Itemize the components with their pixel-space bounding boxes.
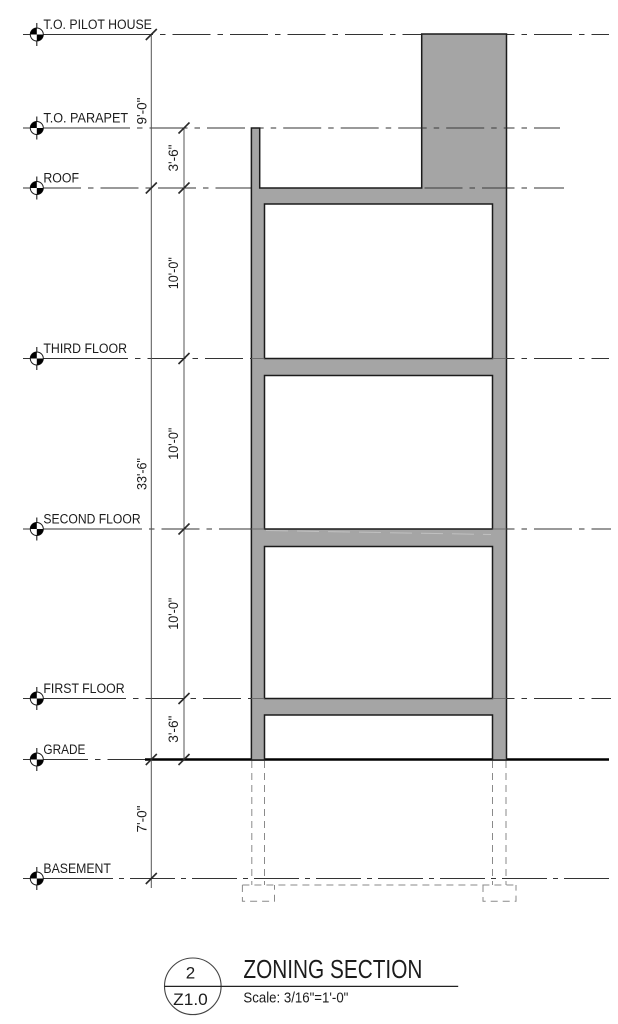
svg-text:ZONING SECTION: ZONING SECTION <box>243 954 422 984</box>
svg-text:ROOF: ROOF <box>43 171 79 186</box>
svg-text:T.O. PILOT HOUSE: T.O. PILOT HOUSE <box>43 17 152 32</box>
svg-text:SECOND FLOOR: SECOND FLOOR <box>43 512 140 527</box>
svg-text:THIRD FLOOR: THIRD FLOOR <box>43 341 127 356</box>
svg-text:10'-0": 10'-0" <box>166 597 181 629</box>
svg-text:BASEMENT: BASEMENT <box>43 861 111 876</box>
svg-text:3'-6": 3'-6" <box>166 715 181 742</box>
svg-text:10'-0": 10'-0" <box>166 257 181 289</box>
svg-text:33'-6": 33'-6" <box>135 458 150 490</box>
svg-text:9'-0": 9'-0" <box>135 97 150 124</box>
svg-text:2: 2 <box>186 964 195 983</box>
svg-text:Scale: 3/16"=1'-0": Scale: 3/16"=1'-0" <box>243 991 348 1007</box>
svg-text:Z1.0: Z1.0 <box>173 990 208 1009</box>
svg-text:FIRST FLOOR: FIRST FLOOR <box>43 681 124 696</box>
svg-text:10'-0": 10'-0" <box>166 427 181 459</box>
svg-text:T.O. PARAPET: T.O. PARAPET <box>43 111 128 126</box>
svg-text:GRADE: GRADE <box>43 742 85 757</box>
svg-text:3'-6": 3'-6" <box>166 144 181 171</box>
svg-text:7'-0": 7'-0" <box>135 805 150 832</box>
